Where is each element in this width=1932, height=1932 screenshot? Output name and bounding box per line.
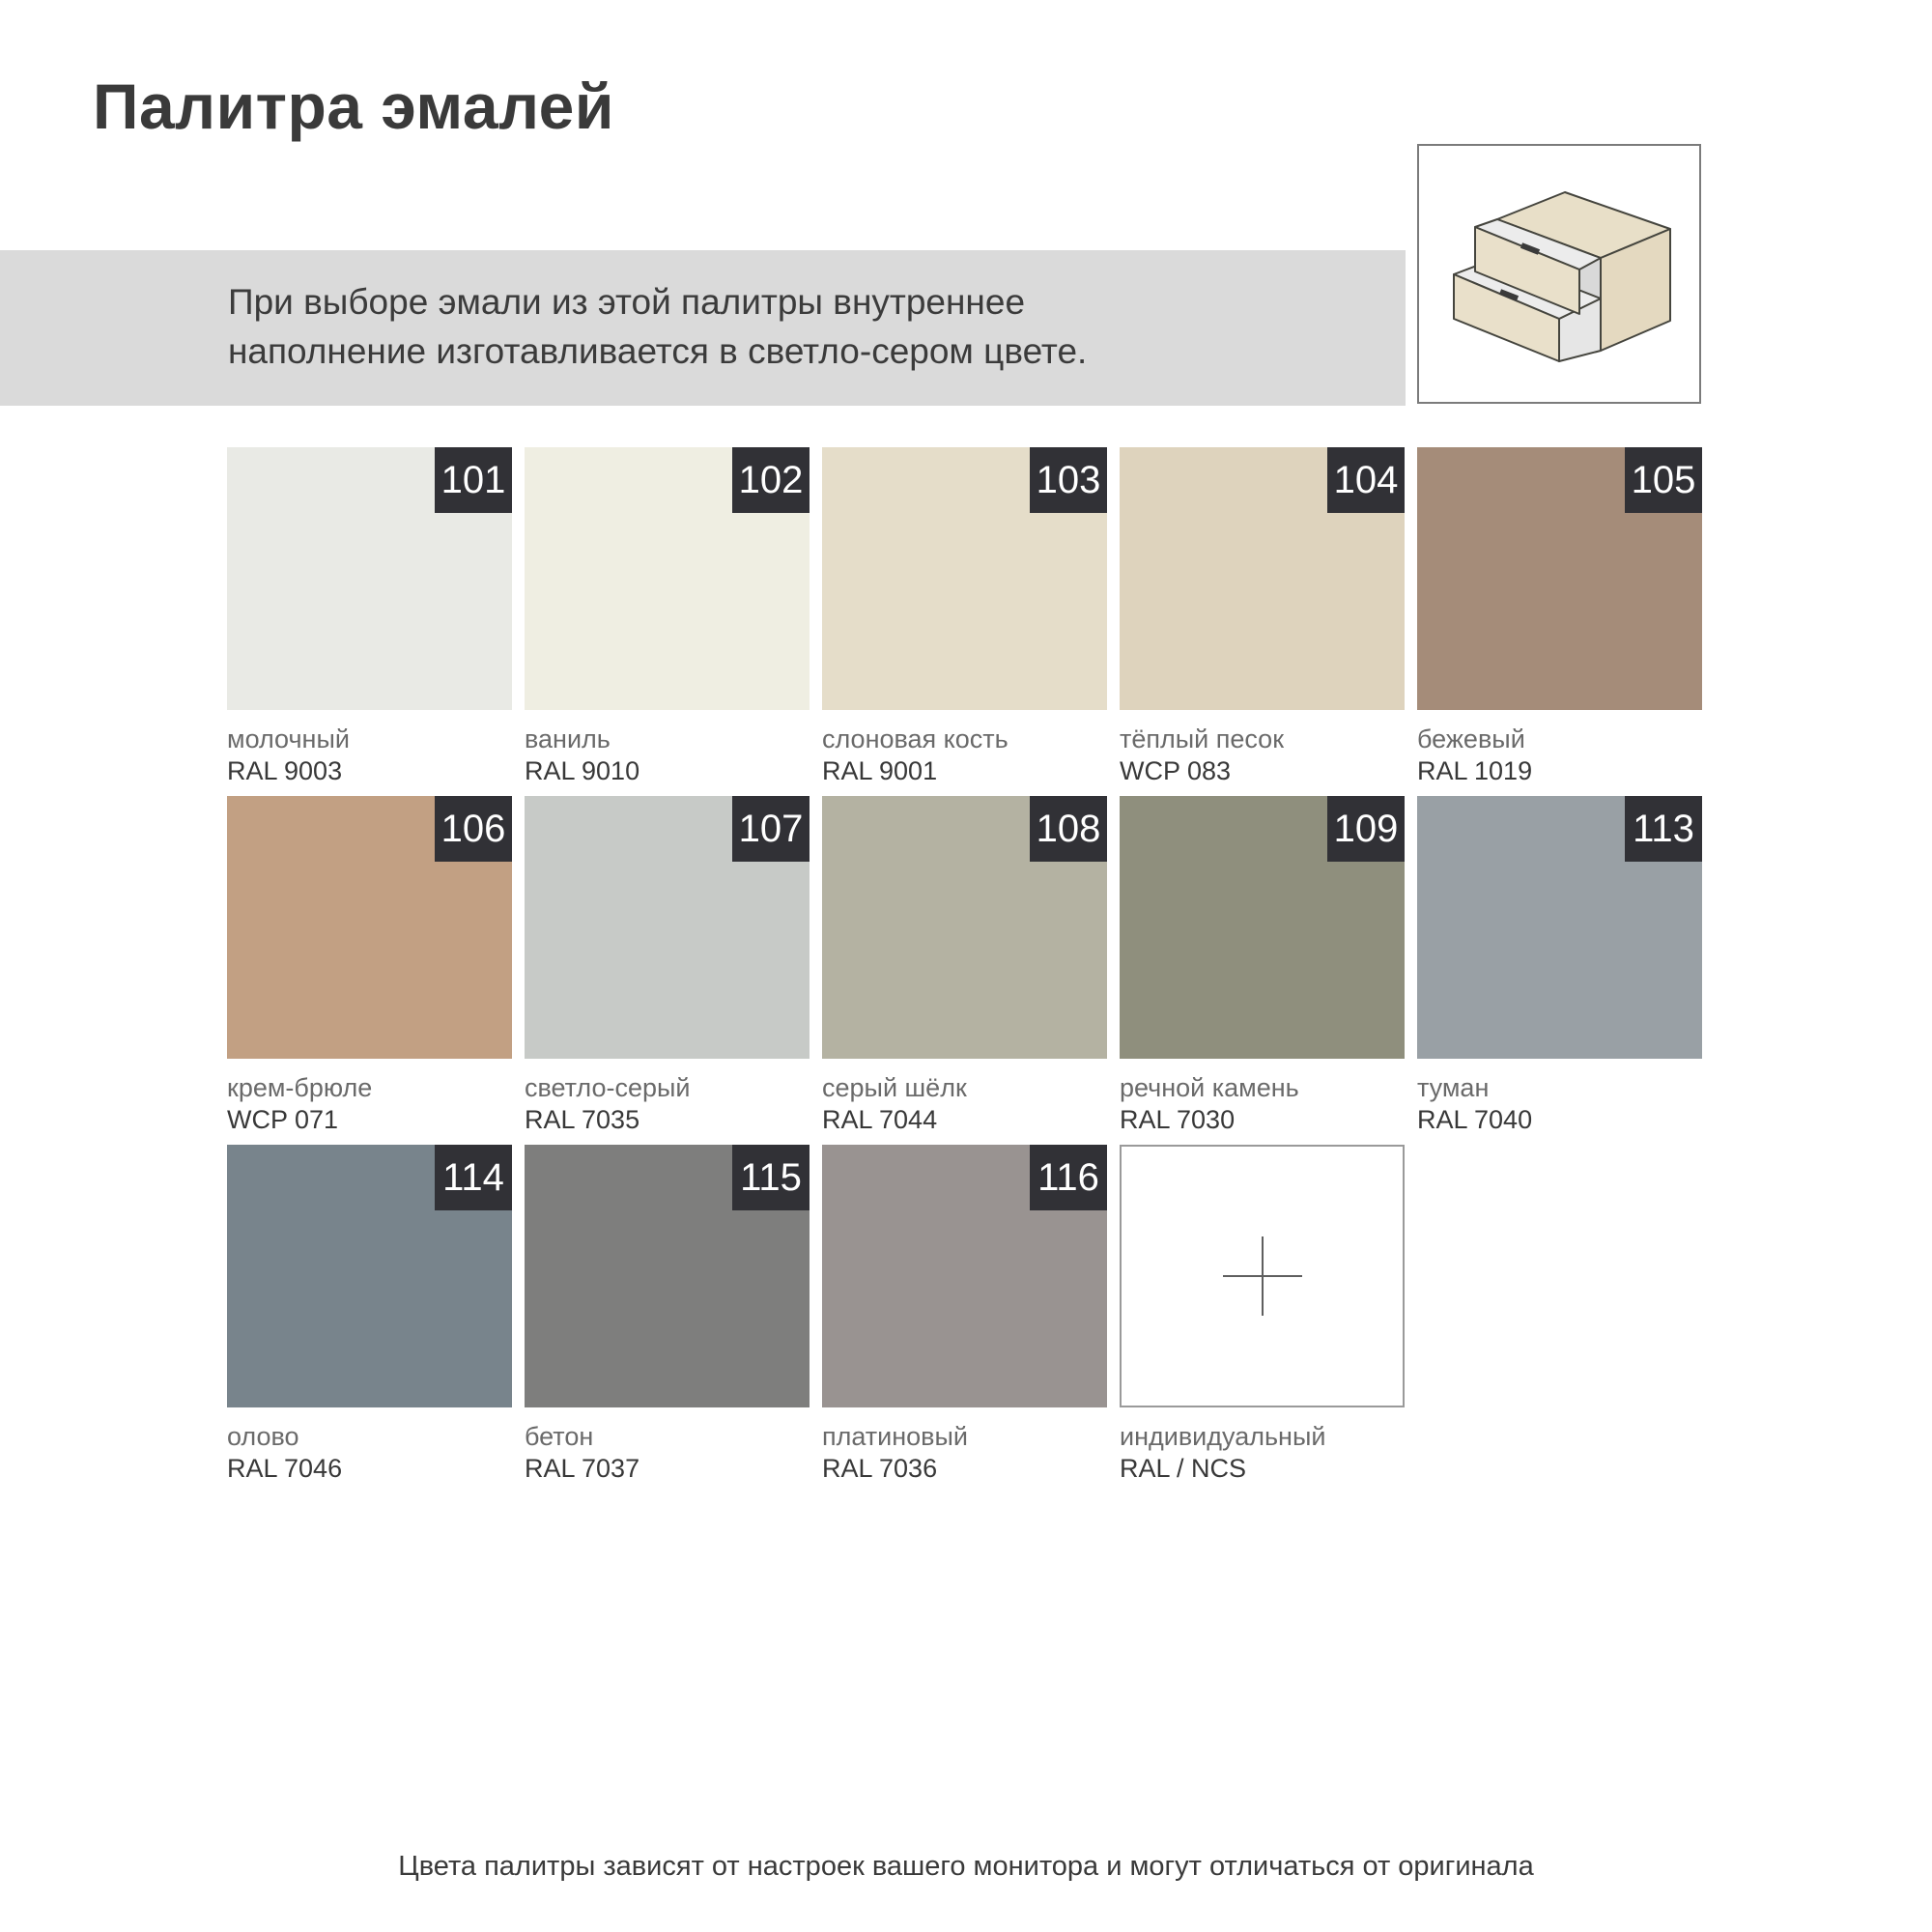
swatch-number-badge: 109 (1327, 796, 1405, 862)
color-tile[interactable]: 107 (525, 796, 810, 1059)
swatch-name-label: молочный (227, 724, 512, 755)
swatch-cell[interactable]: 105 бежевый RAL 1019 (1417, 447, 1702, 787)
swatch-number-badge: 106 (435, 796, 512, 862)
swatch-number-badge: 101 (435, 447, 512, 513)
swatch-code-label: RAL 7036 (822, 1453, 1107, 1485)
swatch-code-label: RAL 7046 (227, 1453, 512, 1485)
swatch-code-label: RAL 7035 (525, 1104, 810, 1136)
color-tile[interactable]: 116 (822, 1145, 1107, 1407)
color-tile[interactable]: 101 (227, 447, 512, 710)
swatch-code-label: RAL / NCS (1120, 1453, 1405, 1485)
swatch-cell[interactable]: 114 олово RAL 7046 (227, 1145, 512, 1485)
color-tile[interactable]: 102 (525, 447, 810, 710)
drawer-unit-icon (1417, 144, 1701, 404)
swatch-cell[interactable]: 107 светло-серый RAL 7035 (525, 796, 810, 1136)
color-tile[interactable]: 104 (1120, 447, 1405, 710)
swatch-code-label: WCP 083 (1120, 755, 1405, 787)
swatch-cell[interactable]: 104 тёплый песок WCP 083 (1120, 447, 1405, 787)
color-tile[interactable]: 108 (822, 796, 1107, 1059)
swatch-name-label: слоновая кость (822, 724, 1107, 755)
swatch-number-badge: 107 (732, 796, 810, 862)
swatch-name-label: бетон (525, 1421, 810, 1453)
swatch-cell[interactable]: 115 бетон RAL 7037 (525, 1145, 810, 1485)
info-banner-text: При выборе эмали из этой палитры внутрен… (228, 277, 1087, 376)
swatch-number-badge: 105 (1625, 447, 1702, 513)
color-tile[interactable]: 106 (227, 796, 512, 1059)
color-tile[interactable]: 109 (1120, 796, 1405, 1059)
swatch-cell[interactable]: 113 туман RAL 7040 (1417, 796, 1702, 1136)
swatch-name-label: крем-брюле (227, 1072, 512, 1104)
swatch-number-badge: 104 (1327, 447, 1405, 513)
color-tile[interactable]: 114 (227, 1145, 512, 1407)
swatch-cell[interactable]: 102 ваниль RAL 9010 (525, 447, 810, 787)
swatch-number-badge: 113 (1625, 796, 1702, 862)
info-banner-line2: наполнение изготавливается в светло-серо… (228, 331, 1087, 371)
swatch-cell[interactable]: 108 серый шёлк RAL 7044 (822, 796, 1107, 1136)
swatch-cell[interactable]: 109 речной камень RAL 7030 (1120, 796, 1405, 1136)
swatch-name-label: бежевый (1417, 724, 1702, 755)
swatch-name-label: речной камень (1120, 1072, 1405, 1104)
swatch-name-label: ваниль (525, 724, 810, 755)
swatch-code-label: WCP 071 (227, 1104, 512, 1136)
swatch-code-label: RAL 1019 (1417, 755, 1702, 787)
swatch-number-badge: 103 (1030, 447, 1107, 513)
swatch-name-label: светло-серый (525, 1072, 810, 1104)
swatch-number-badge: 115 (732, 1145, 810, 1210)
color-tile[interactable]: 115 (525, 1145, 810, 1407)
page-title: Палитра эмалей (93, 70, 614, 143)
swatch-cell[interactable]: 106 крем-брюле WCP 071 (227, 796, 512, 1136)
swatch-cell[interactable]: индивидуальный RAL / NCS (1120, 1145, 1405, 1485)
swatch-cell[interactable]: 101 молочный RAL 9003 (227, 447, 512, 787)
swatch-cell[interactable]: 103 слоновая кость RAL 9001 (822, 447, 1107, 787)
swatch-name-label: индивидуальный (1120, 1421, 1405, 1453)
swatch-number-badge: 114 (435, 1145, 512, 1210)
plus-icon (1223, 1236, 1302, 1316)
color-tile[interactable]: 103 (822, 447, 1107, 710)
info-banner: При выборе эмали из этой палитры внутрен… (0, 250, 1406, 406)
swatch-code-label: RAL 9003 (227, 755, 512, 787)
color-tile[interactable] (1120, 1145, 1405, 1407)
info-banner-line1: При выборе эмали из этой палитры внутрен… (228, 282, 1025, 322)
swatch-name-label: платиновый (822, 1421, 1107, 1453)
swatch-code-label: RAL 7040 (1417, 1104, 1702, 1136)
swatch-name-label: олово (227, 1421, 512, 1453)
swatch-cell[interactable]: 116 платиновый RAL 7036 (822, 1145, 1107, 1485)
palette-grid: 101 молочный RAL 9003 102 ваниль RAL 901… (227, 447, 1702, 1485)
swatch-code-label: RAL 9010 (525, 755, 810, 787)
swatch-number-badge: 116 (1030, 1145, 1107, 1210)
color-tile[interactable]: 113 (1417, 796, 1702, 1059)
swatch-name-label: туман (1417, 1072, 1702, 1104)
swatch-code-label: RAL 7044 (822, 1104, 1107, 1136)
swatch-number-badge: 102 (732, 447, 810, 513)
color-tile[interactable]: 105 (1417, 447, 1702, 710)
swatch-name-label: серый шёлк (822, 1072, 1107, 1104)
swatch-name-label: тёплый песок (1120, 724, 1405, 755)
swatch-code-label: RAL 7037 (525, 1453, 810, 1485)
swatch-number-badge: 108 (1030, 796, 1107, 862)
footer-note: Цвета палитры зависят от настроек вашего… (0, 1851, 1932, 1883)
swatch-code-label: RAL 7030 (1120, 1104, 1405, 1136)
swatch-code-label: RAL 9001 (822, 755, 1107, 787)
enamel-palette-page: Палитра эмалей При выборе эмали из этой … (0, 0, 1932, 1932)
